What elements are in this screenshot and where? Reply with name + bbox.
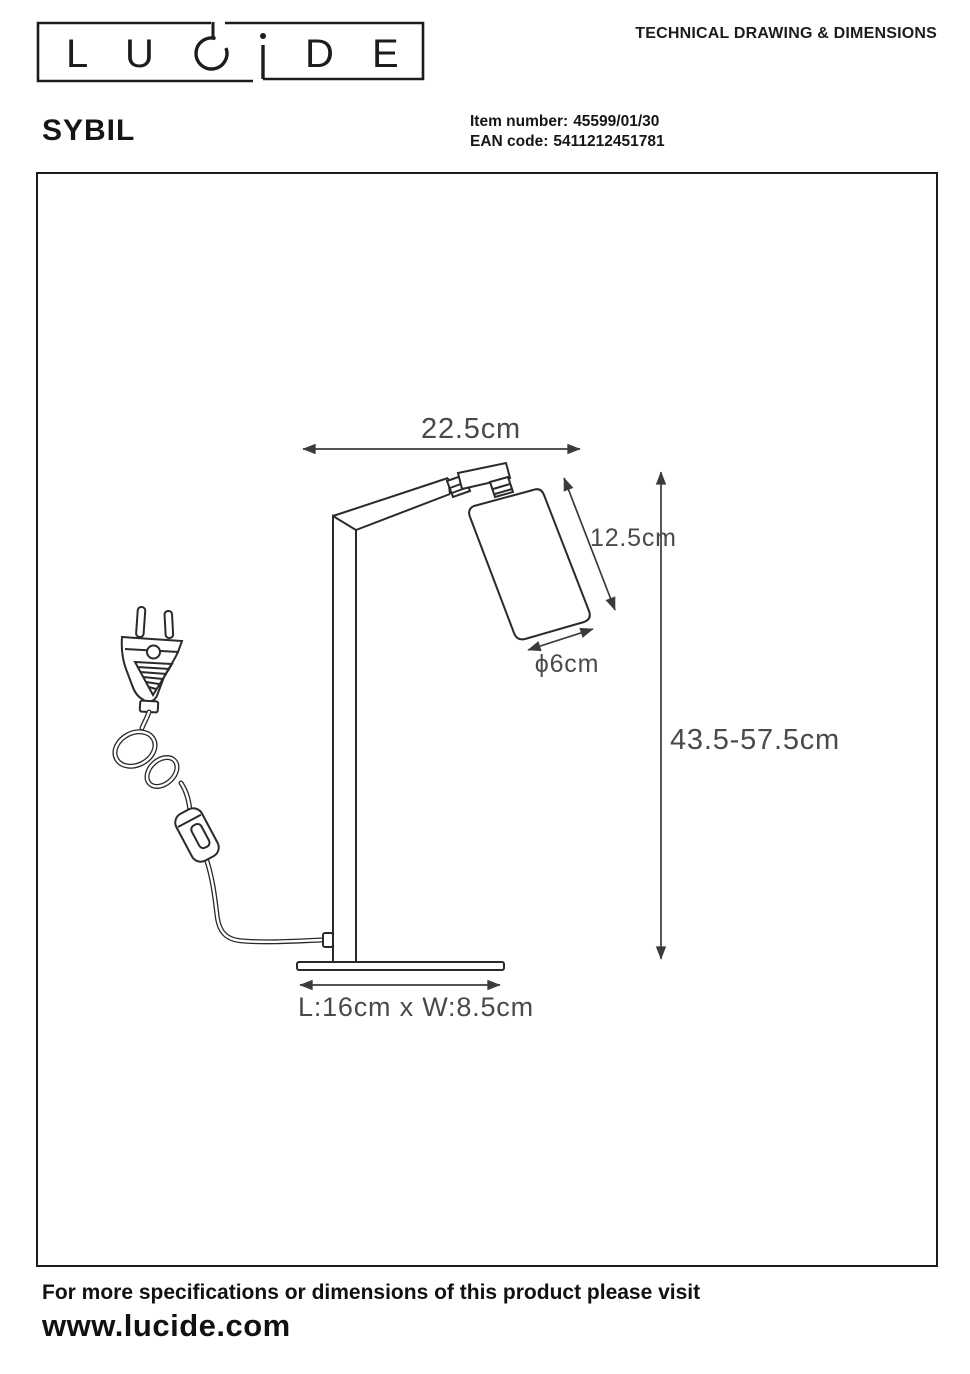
dim-label-width: 22.5cm [421,413,521,445]
plug-screw [147,646,160,659]
lamp-head [469,489,590,639]
ean-value: 5411212451781 [553,133,664,150]
lamp-post [333,516,356,963]
plug-prong-left [136,607,146,637]
product-codes: Item number:45599/01/30 EAN code:5411212… [470,112,665,152]
lamp-base [297,962,504,970]
lamp-drawing [297,463,590,970]
ean-label: EAN code: [470,133,548,150]
footer: For more specifications or dimensions of… [42,1281,700,1344]
plug-prong-right [164,611,173,638]
footer-note: For more specifications or dimensions of… [42,1281,700,1305]
logo-letter-c [196,38,227,69]
brand-logo: L U D E [36,20,428,84]
dim-label-height-range: 43.5-57.5cm [670,724,840,756]
logo-letter-i [260,33,266,79]
ean-row: EAN code:5411212451781 [470,132,665,152]
lamp-arm [333,478,450,530]
lamp-hinge [447,463,513,497]
item-number-value: 45599/01/30 [573,113,659,130]
cord-connector [323,933,333,947]
technical-drawing: 22.5cm 12.5cm ϕ6cm 43.5-57.5cm L:16cm x … [38,174,936,1265]
cord-coil [109,725,183,792]
inline-switch [172,805,222,865]
logo-letter-d: D [305,32,334,76]
power-cord [109,712,333,947]
dim-label-head-length: 12.5cm [590,524,677,552]
logo-letter-l: L [66,32,88,76]
spec-sheet-page: L U D E TECHNICAL DRAWING & DIMENSIONS S… [0,0,970,1374]
item-number-row: Item number:45599/01/30 [470,112,665,132]
logo-letter-e: E [372,32,399,76]
website-url: www.lucide.com [42,1308,700,1344]
logo-letter-u: U [125,32,154,76]
item-number-label: Item number: [470,113,568,130]
product-name: SYBIL [42,114,135,148]
dim-label-head-diameter: ϕ6cm [535,650,599,678]
page-title: TECHNICAL DRAWING & DIMENSIONS [635,25,937,43]
power-plug-icon [122,607,182,713]
drawing-box: 22.5cm 12.5cm ϕ6cm 43.5-57.5cm L:16cm x … [36,172,938,1267]
dim-label-base: L:16cm x W:8.5cm [298,992,534,1022]
